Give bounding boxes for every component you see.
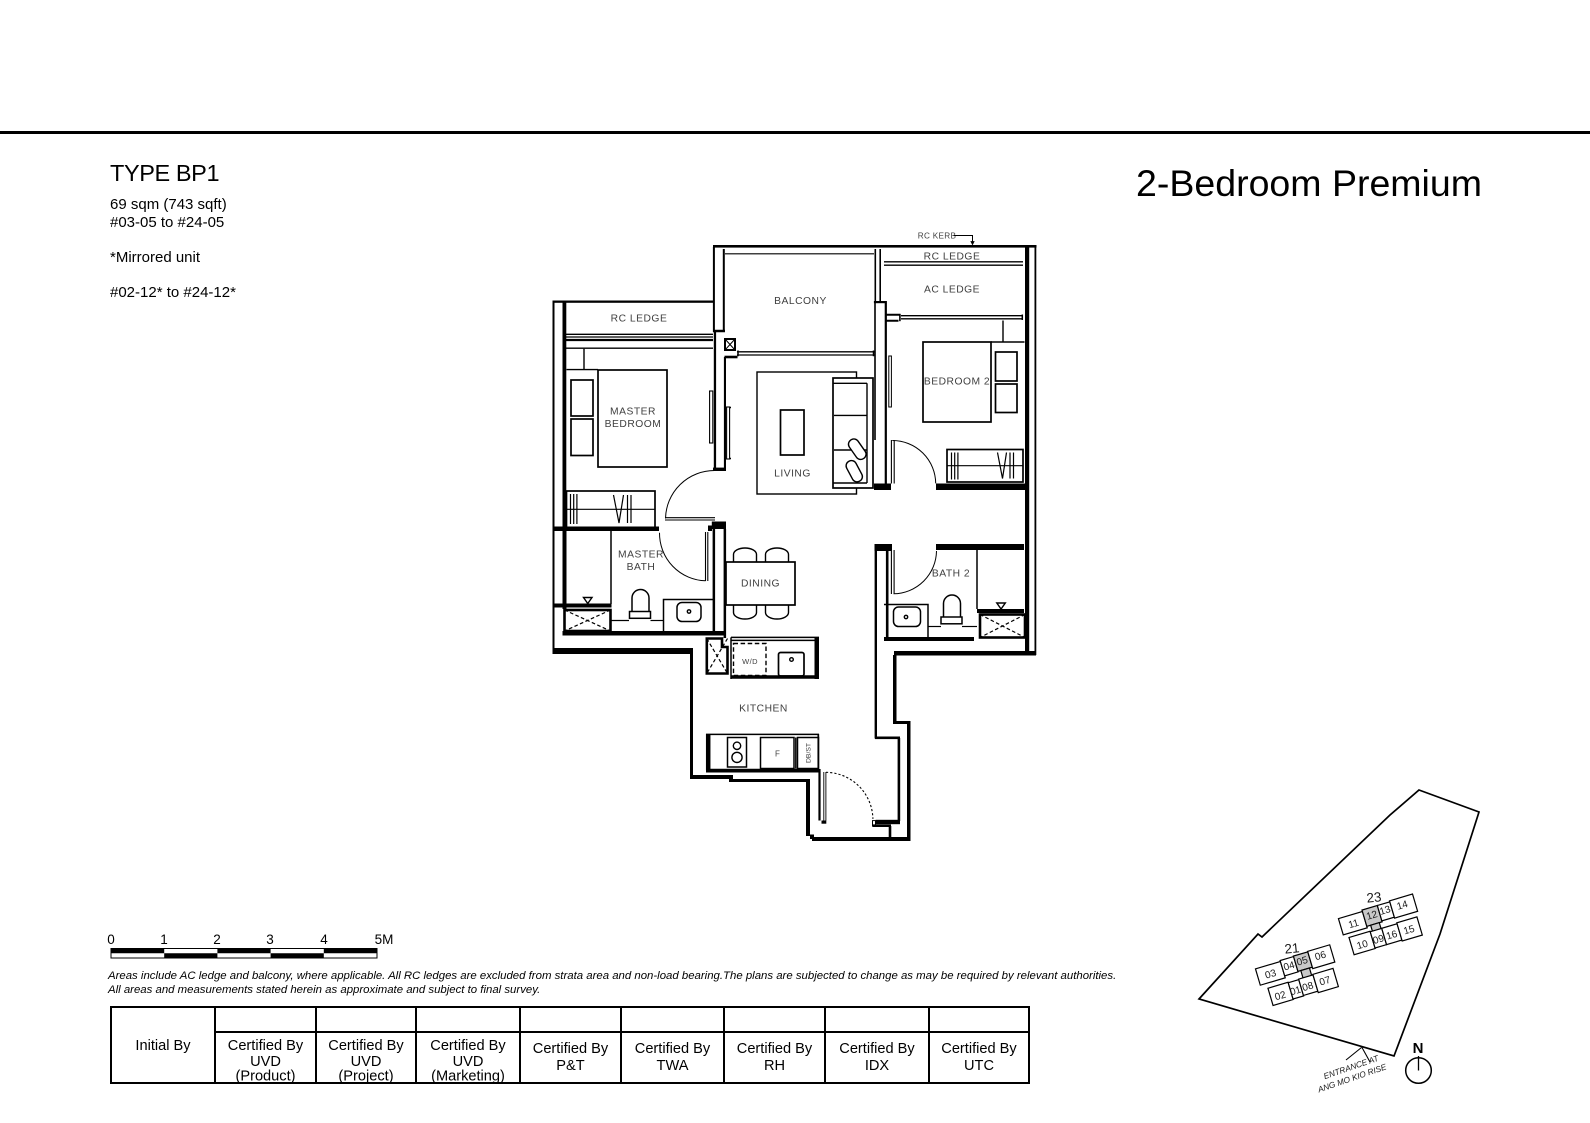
svg-text:P&T: P&T [556, 1058, 584, 1074]
svg-text:IDX: IDX [865, 1058, 890, 1074]
svg-text:0: 0 [107, 932, 115, 947]
svg-text:F: F [775, 750, 780, 759]
svg-text:BEDROOM 2: BEDROOM 2 [924, 377, 990, 388]
svg-text:RH: RH [764, 1058, 785, 1074]
svg-text:(Product): (Product) [235, 1069, 295, 1085]
svg-text:RC LEDGE: RC LEDGE [924, 252, 981, 263]
svg-text:N: N [1413, 1040, 1424, 1057]
svg-text:(Marketing): (Marketing) [431, 1069, 505, 1085]
svg-text:MASTER: MASTER [610, 407, 656, 418]
svg-text:23: 23 [1366, 889, 1383, 905]
svg-text:BATH: BATH [627, 562, 656, 573]
svg-text:BATH 2: BATH 2 [932, 569, 970, 580]
svg-text:TWA: TWA [657, 1058, 689, 1074]
svg-text:1: 1 [160, 932, 168, 947]
svg-text:UTC: UTC [964, 1058, 994, 1074]
svg-text:KITCHEN: KITCHEN [739, 704, 788, 715]
svg-text:RC LEDGE: RC LEDGE [611, 314, 668, 325]
svg-text:LIVING: LIVING [774, 469, 811, 480]
svg-text:AC LEDGE: AC LEDGE [924, 285, 980, 296]
svg-text:3: 3 [266, 932, 274, 947]
svg-text:Certified By: Certified By [533, 1041, 609, 1057]
svg-text:Initial By: Initial By [135, 1038, 191, 1054]
svg-text:Certified By: Certified By [328, 1038, 404, 1054]
svg-text:2: 2 [213, 932, 221, 947]
svg-text:(Project): (Project) [338, 1069, 393, 1085]
svg-text:5M: 5M [375, 932, 394, 947]
svg-text:DINING: DINING [741, 579, 780, 590]
svg-text:4: 4 [320, 932, 328, 947]
svg-text:Certified By: Certified By [635, 1041, 711, 1057]
svg-text:W/D: W/D [742, 657, 758, 666]
svg-text:BALCONY: BALCONY [774, 296, 827, 307]
svg-text:Certified By: Certified By [430, 1038, 506, 1054]
svg-text:DB/ST: DB/ST [806, 743, 813, 763]
svg-text:RC KERB: RC KERB [918, 232, 957, 241]
svg-text:MASTER: MASTER [618, 550, 664, 561]
svg-text:BEDROOM: BEDROOM [605, 419, 662, 430]
svg-text:Certified By: Certified By [941, 1041, 1017, 1057]
svg-text:Certified By: Certified By [228, 1038, 304, 1054]
svg-text:Certified By: Certified By [839, 1041, 915, 1057]
svg-text:Certified By: Certified By [737, 1041, 813, 1057]
